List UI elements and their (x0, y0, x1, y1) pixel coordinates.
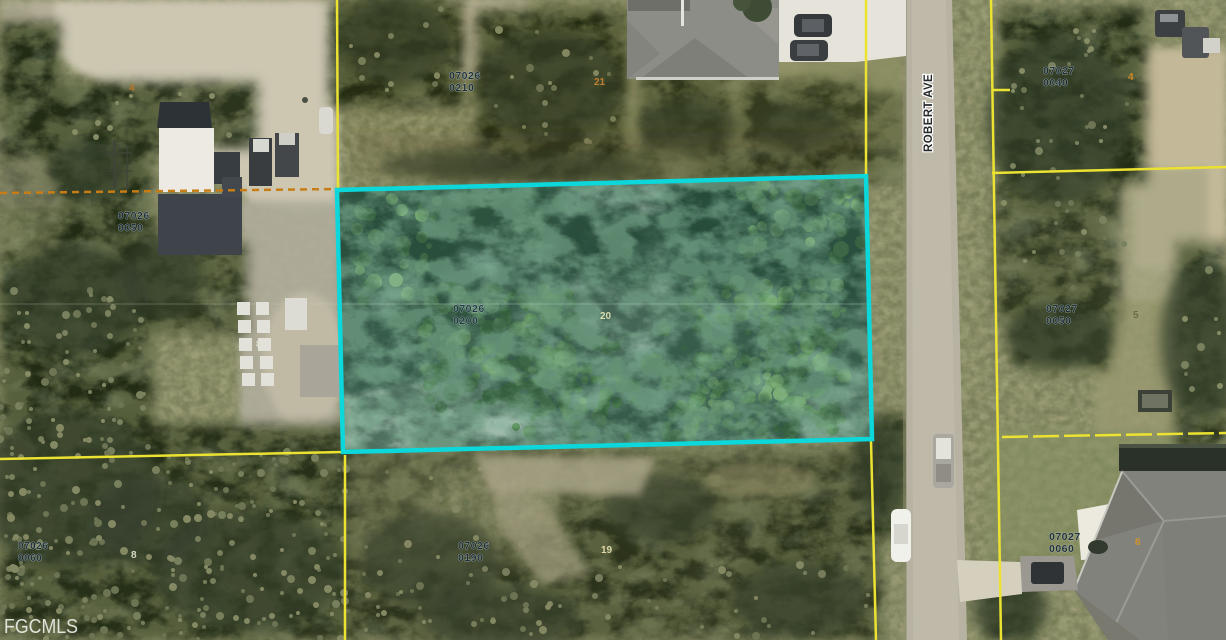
svg-text:21: 21 (594, 77, 606, 88)
svg-text:FGCMLS: FGCMLS (4, 615, 78, 638)
svg-text:ROBERT AVE: ROBERT AVE (923, 74, 935, 152)
svg-text:19: 19 (601, 545, 613, 556)
svg-text:4: 4 (129, 83, 135, 94)
svg-text:8: 8 (256, 339, 261, 349)
svg-text:20: 20 (600, 311, 612, 322)
svg-text:5: 5 (1133, 310, 1139, 321)
svg-text:8: 8 (131, 550, 137, 561)
svg-text:6: 6 (1135, 537, 1141, 548)
svg-text:4: 4 (1128, 72, 1134, 83)
